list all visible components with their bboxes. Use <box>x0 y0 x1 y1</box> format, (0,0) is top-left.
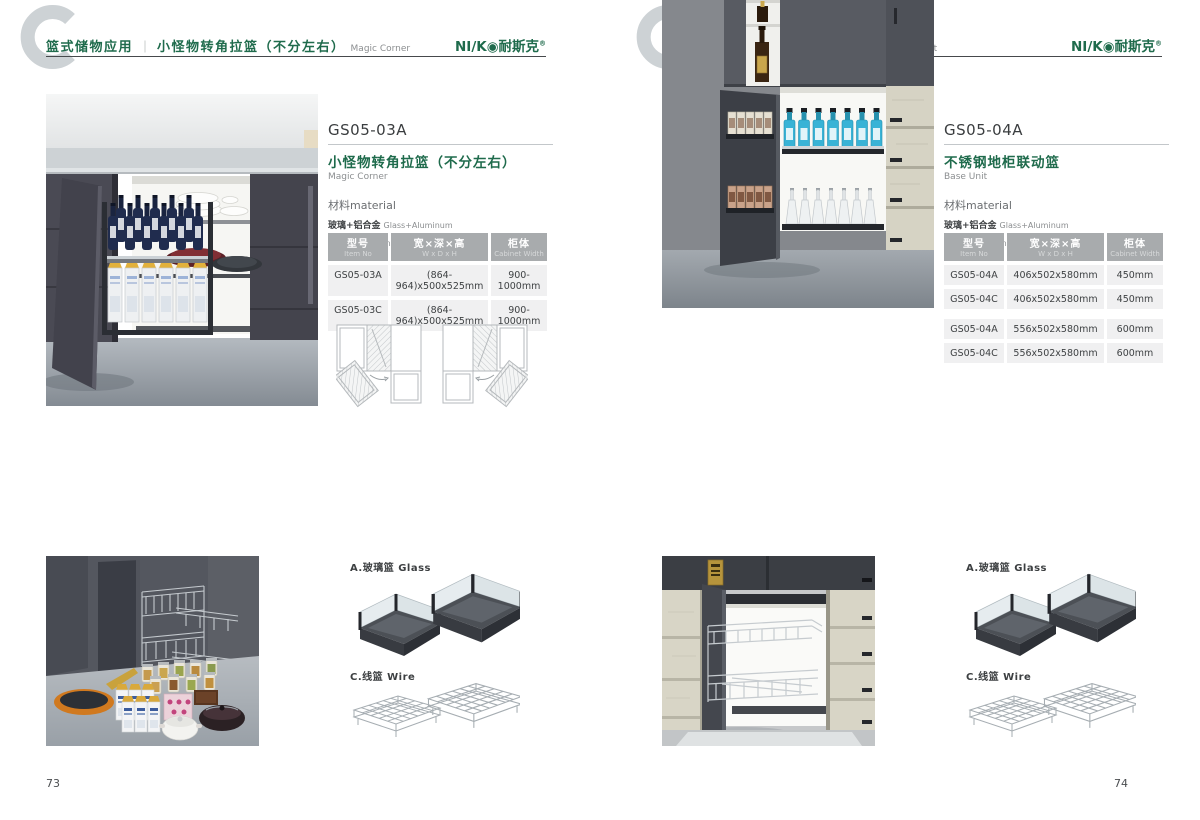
application-photo <box>662 556 875 746</box>
page-right: 篮式储物应用 ｜ 不锈钢地柜联动篮 Base Unit NI/K◉耐斯克® <box>600 0 1200 820</box>
header-divider: ｜ <box>139 38 151 55</box>
product-info: GS05-04A 不锈钢地柜联动篮 Base Unit 材料material 玻… <box>944 121 1169 249</box>
wire-basket-image <box>348 676 520 756</box>
registered-mark: ® <box>1155 40 1162 48</box>
spec-header-item-no: 型号Item No <box>328 233 388 261</box>
spec-cell: GS05-04C <box>944 343 1004 363</box>
spec-cell: 450mm <box>1107 289 1163 309</box>
wire-basket-image <box>964 676 1136 756</box>
catalog-spread: 篮式储物应用 ｜ 小怪物转角拉篮（不分左右） Magic Corner NI/K… <box>0 0 1200 820</box>
main-product-photo <box>46 94 318 406</box>
spec-header-dimensions: 宽×深×高W x D x H <box>1007 233 1104 261</box>
installation-diagrams <box>336 317 528 409</box>
header-title-cn: 小怪物转角拉篮（不分左右） <box>157 36 346 55</box>
spec-header-dimensions: 宽×深×高W x D x H <box>391 233 488 261</box>
spec-cell: 406x502x580mm <box>1007 265 1104 285</box>
header-rule <box>46 56 546 57</box>
material-line: 玻璃+铝合金Glass+Aluminum <box>328 218 553 231</box>
material-line: 玻璃+铝合金Glass+Aluminum <box>944 218 1169 231</box>
product-info: GS05-03A 小怪物转角拉篮（不分左右） Magic Corner 材料ma… <box>328 121 553 249</box>
main-product-photo <box>662 0 934 308</box>
spec-cell: 406x502x580mm <box>1007 289 1104 309</box>
product-model: GS05-03A <box>328 121 553 145</box>
spec-table: 型号Item No 宽×深×高W x D x H 柜体Cabinet Width… <box>944 233 1163 363</box>
application-photo <box>46 556 259 746</box>
product-model: GS05-04A <box>944 121 1169 145</box>
spec-cell: GS05-03A <box>328 265 388 296</box>
spec-cell: 900-1000mm <box>491 265 547 296</box>
spec-cell: 600mm <box>1107 319 1163 339</box>
header-category: 篮式储物应用 <box>46 36 133 55</box>
spec-cell: 556x502x580mm <box>1007 343 1104 363</box>
page-header: 篮式储物应用 ｜ 小怪物转角拉篮（不分左右） Magic Corner <box>46 36 410 55</box>
page-left: 篮式储物应用 ｜ 小怪物转角拉篮（不分左右） Magic Corner NI/K… <box>0 0 600 820</box>
product-name-en: Magic Corner <box>328 172 553 182</box>
material-heading: 材料material <box>328 197 553 213</box>
spec-group-gap <box>944 313 1163 315</box>
spec-header-item-no: 型号Item No <box>944 233 1004 261</box>
product-name-cn: 不锈钢地柜联动篮 <box>944 151 1169 171</box>
spec-cell: (864-964)x500x525mm <box>391 265 488 296</box>
spec-cell: 556x502x580mm <box>1007 319 1104 339</box>
glass-basket-image <box>348 572 520 666</box>
registered-mark: ® <box>539 40 546 48</box>
spec-cell: 600mm <box>1107 343 1163 363</box>
spec-header-cabinet: 柜体Cabinet Width <box>1107 233 1163 261</box>
spec-cell: GS05-04A <box>944 319 1004 339</box>
spec-cell: 450mm <box>1107 265 1163 285</box>
brand-logo: NI/K◉耐斯克® <box>455 35 546 55</box>
spec-cell: GS05-04C <box>944 289 1004 309</box>
glass-basket-image <box>964 572 1136 666</box>
brand-logo: NI/K◉耐斯克® <box>1071 35 1162 55</box>
page-number: 74 <box>1114 777 1128 790</box>
page-number: 73 <box>46 777 60 790</box>
product-name-en: Base Unit <box>944 172 1169 182</box>
product-name-cn: 小怪物转角拉篮（不分左右） <box>328 151 553 171</box>
spec-cell: GS05-04A <box>944 265 1004 285</box>
header-title-en: Magic Corner <box>351 44 411 54</box>
material-heading: 材料material <box>944 197 1169 213</box>
spec-header-cabinet: 柜体Cabinet Width <box>491 233 547 261</box>
